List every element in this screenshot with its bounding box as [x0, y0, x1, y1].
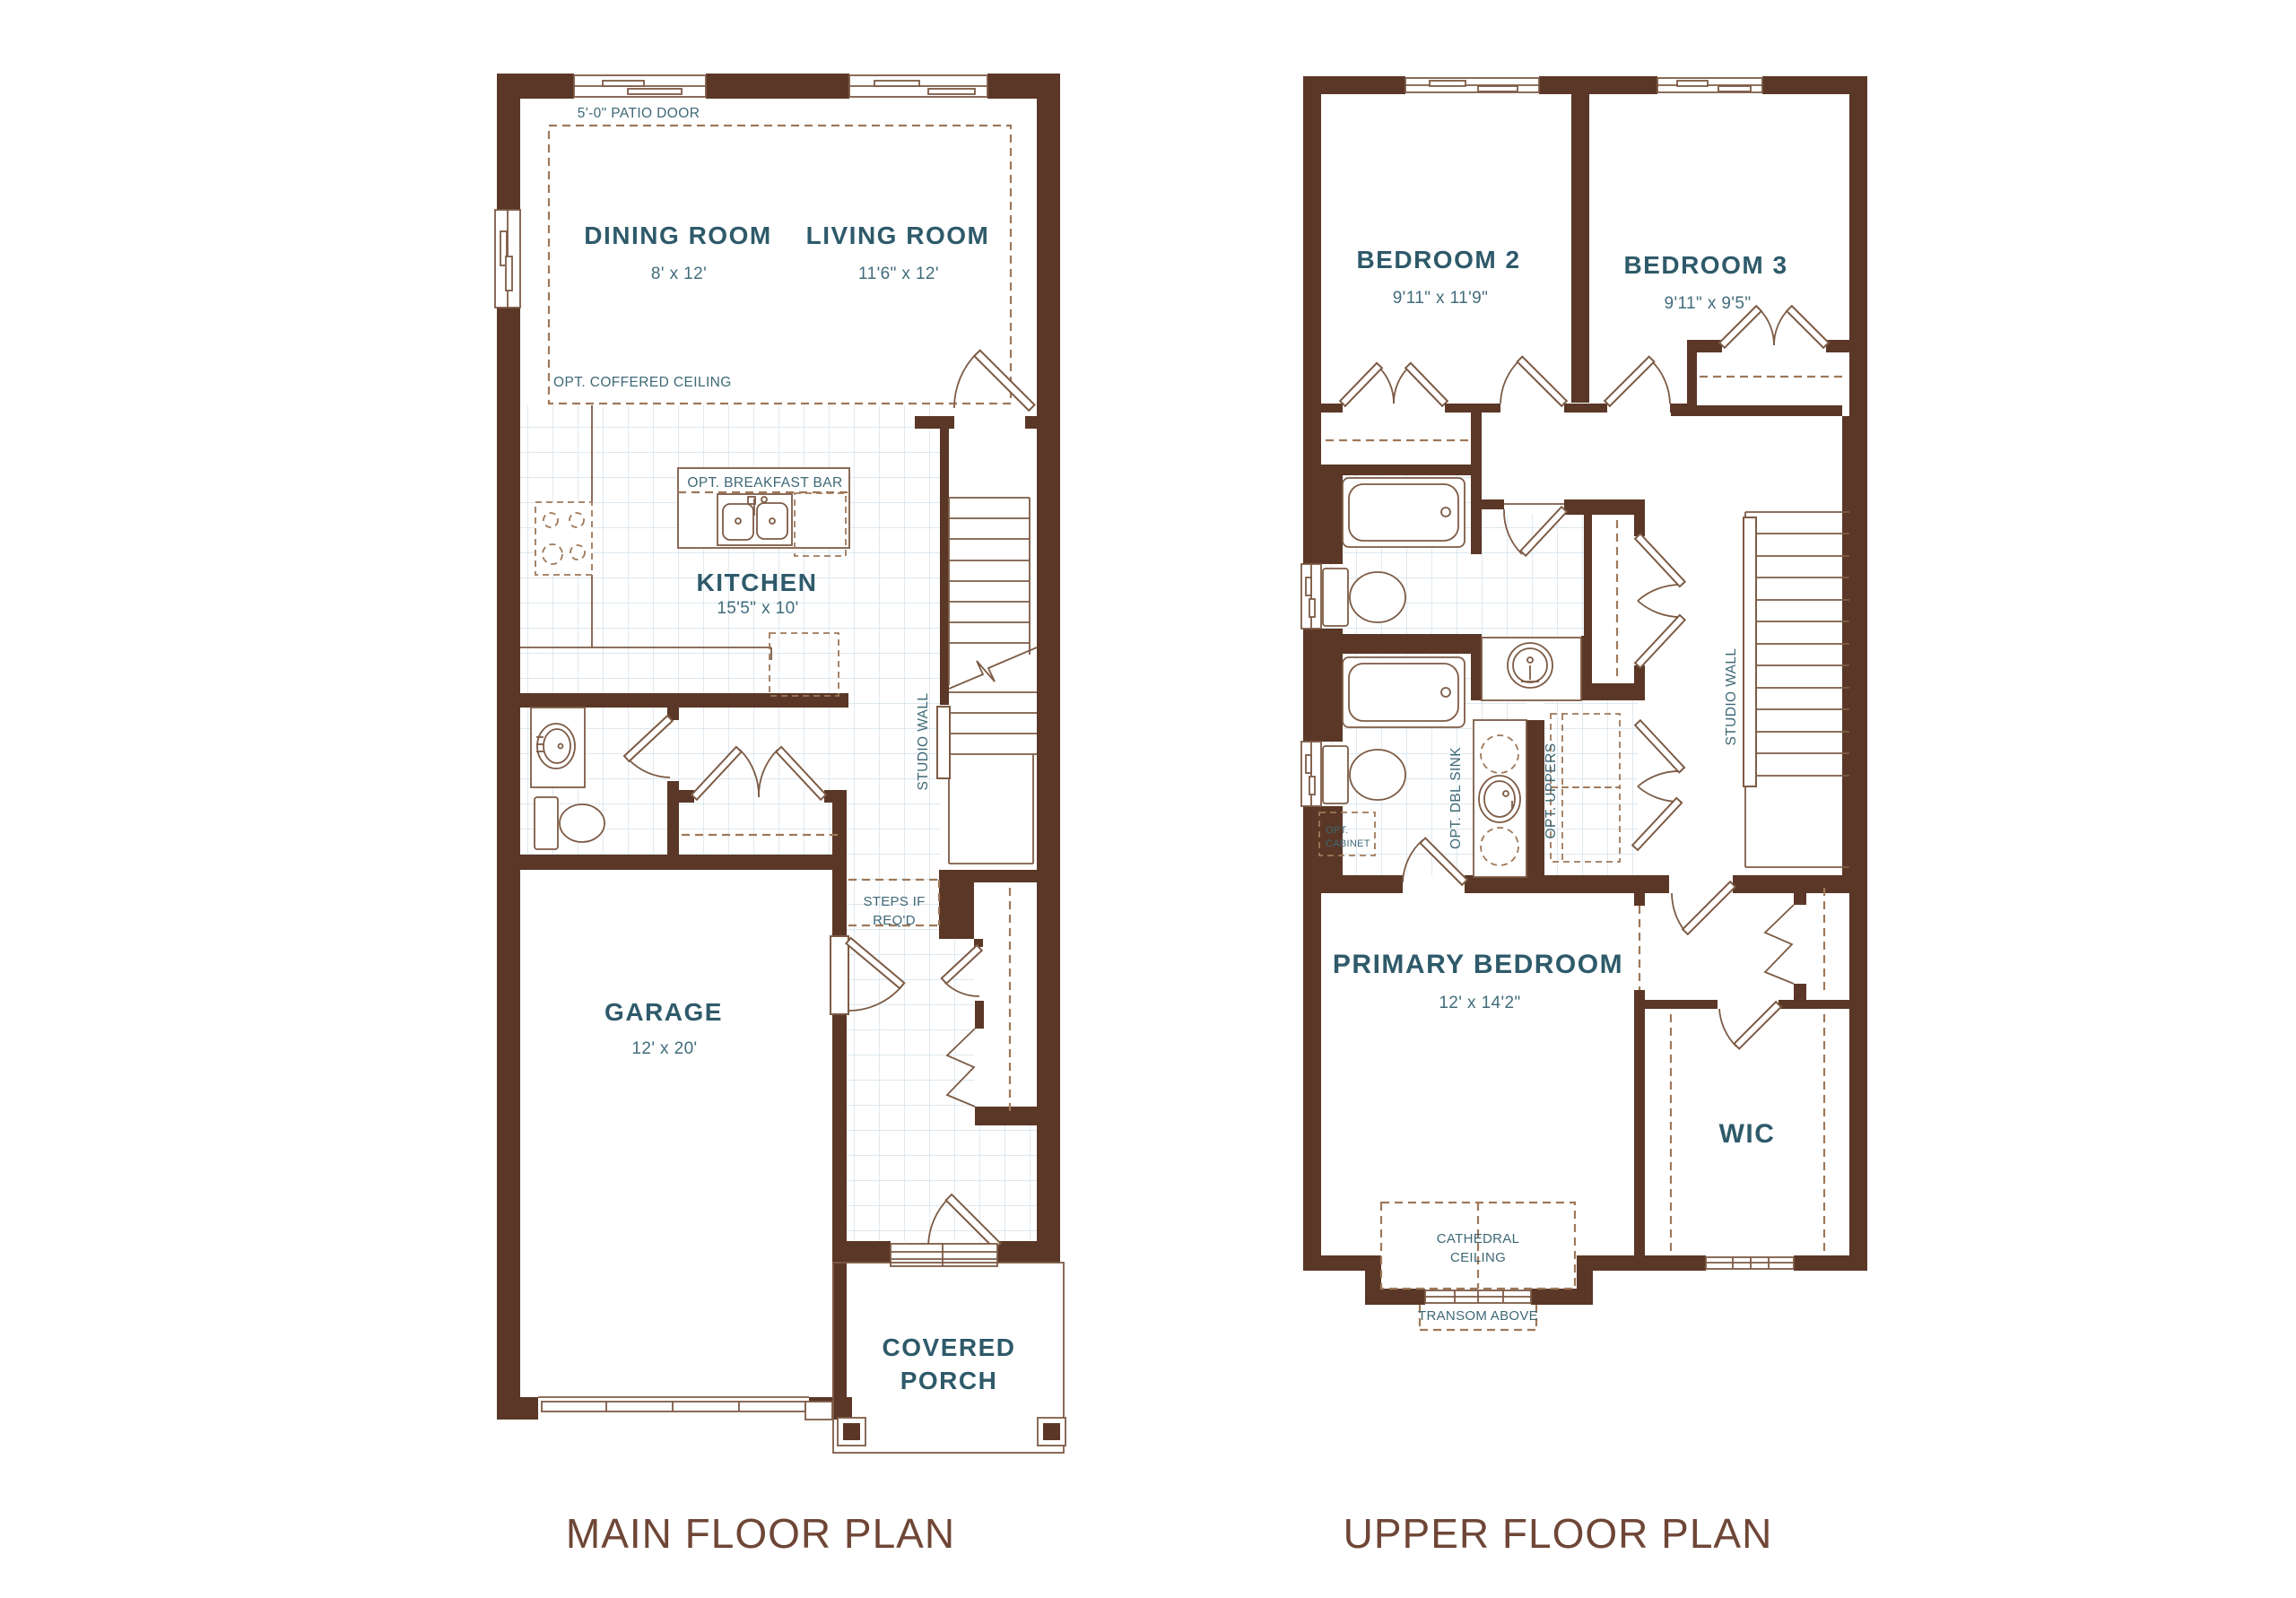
- svg-text:COVERED: COVERED: [883, 1333, 1016, 1361]
- svg-text:MAIN FLOOR PLAN: MAIN FLOOR PLAN: [566, 1510, 955, 1557]
- svg-text:REQ'D: REQ'D: [873, 913, 916, 928]
- svg-text:STUDIO WALL: STUDIO WALL: [1724, 648, 1739, 746]
- svg-text:CABINET: CABINET: [1326, 838, 1370, 849]
- svg-text:OPT. COFFERED CEILING: OPT. COFFERED CEILING: [553, 375, 732, 390]
- svg-text:OPT. BREAKFAST BAR: OPT. BREAKFAST BAR: [687, 475, 842, 491]
- svg-text:CATHEDRAL: CATHEDRAL: [1437, 1231, 1519, 1246]
- svg-text:5'-0" PATIO DOOR: 5'-0" PATIO DOOR: [578, 106, 700, 121]
- svg-text:9'11" x 9'5": 9'11" x 9'5": [1664, 294, 1751, 313]
- svg-text:PORCH: PORCH: [900, 1367, 998, 1394]
- svg-text:KITCHEN: KITCHEN: [697, 569, 818, 596]
- svg-text:CEILING: CEILING: [1450, 1250, 1506, 1265]
- svg-text:8' x 12': 8' x 12': [651, 265, 707, 283]
- svg-text:WIC: WIC: [1719, 1119, 1776, 1149]
- svg-text:UPPER FLOOR PLAN: UPPER FLOOR PLAN: [1344, 1510, 1773, 1557]
- svg-text:TRANSOM ABOVE: TRANSOM ABOVE: [1418, 1308, 1538, 1324]
- svg-text:BEDROOM 3: BEDROOM 3: [1623, 251, 1787, 279]
- svg-text:GARAGE: GARAGE: [604, 998, 723, 1026]
- svg-text:STUDIO WALL: STUDIO WALL: [916, 693, 931, 791]
- svg-text:12' x 14'2": 12' x 14'2": [1439, 994, 1520, 1012]
- svg-text:OPT.: OPT.: [1326, 825, 1349, 836]
- svg-text:12' x 20': 12' x 20': [631, 1039, 697, 1058]
- svg-text:11'6" x 12': 11'6" x 12': [858, 265, 939, 283]
- svg-text:STEPS IF: STEPS IF: [863, 894, 925, 909]
- svg-text:9'11" x 11'9": 9'11" x 11'9": [1393, 289, 1489, 308]
- svg-text:OPT. UPPERS: OPT. UPPERS: [1544, 743, 1559, 839]
- svg-text:LIVING ROOM: LIVING ROOM: [806, 221, 990, 249]
- svg-text:OPT. DBL SINK: OPT. DBL SINK: [1448, 747, 1464, 849]
- svg-text:DINING ROOM: DINING ROOM: [584, 221, 771, 249]
- svg-text:BEDROOM 2: BEDROOM 2: [1356, 246, 1520, 274]
- svg-text:15'5" x 10': 15'5" x 10': [717, 599, 798, 618]
- svg-text:PRIMARY BEDROOM: PRIMARY BEDROOM: [1333, 950, 1623, 979]
